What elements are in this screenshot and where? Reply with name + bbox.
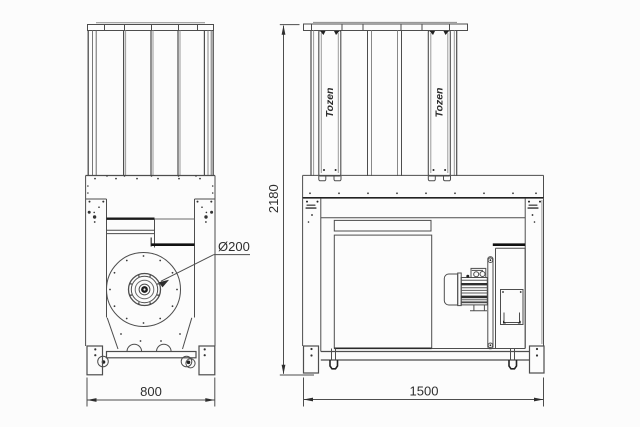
svg-text:1500: 1500 [410, 384, 439, 399]
svg-text:Tozen: Tozen [324, 88, 336, 118]
svg-text:Tozen: Tozen [434, 88, 446, 118]
svg-text:800: 800 [140, 384, 162, 399]
svg-text:2180: 2180 [266, 184, 281, 213]
svg-text:Ø200: Ø200 [218, 239, 250, 254]
